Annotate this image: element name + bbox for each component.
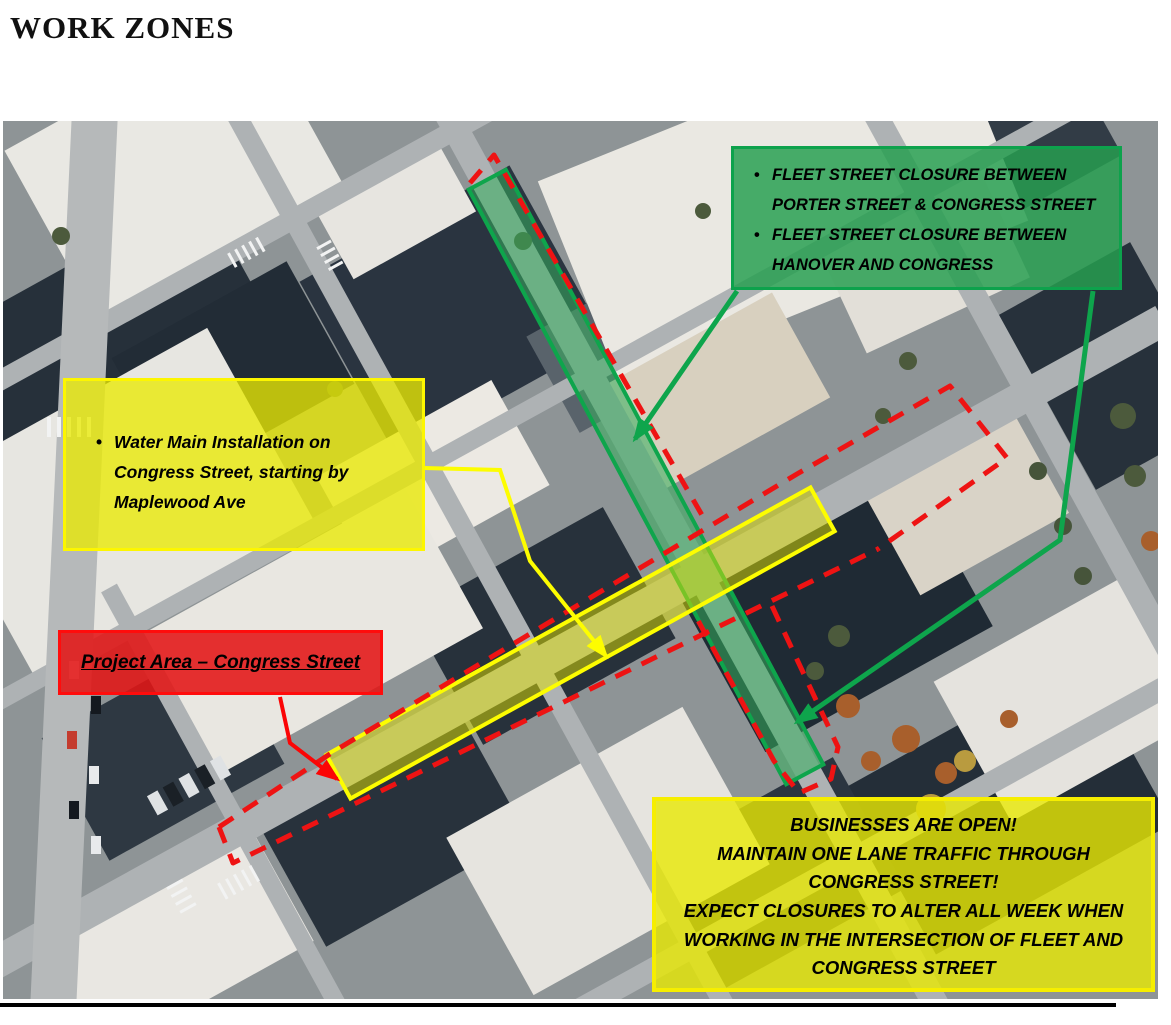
bottom-divider [0,1003,1116,1007]
project-area-leader-arrow [280,697,337,779]
page-title: WORK ZONES [10,10,234,46]
businesses-open-callout: BUSINESSES ARE OPEN! MAINTAIN ONE LANE T… [652,797,1155,992]
fleet-closure-leader-arrow-north [635,291,737,439]
notice-line: BUSINESSES ARE OPEN! [664,811,1143,840]
fleet-closure-item: FLEET STREET CLOSURE BETWEEN HANOVER AND… [772,220,1109,280]
notice-line: MAINTAIN ONE LANE TRAFFIC THROUGH CONGRE… [664,840,1143,897]
aerial-map: FLEET STREET CLOSURE BETWEEN PORTER STRE… [3,121,1158,999]
water-main-item: Water Main Installation on Congress Stre… [114,427,386,517]
project-area-callout: Project Area – Congress Street [58,630,383,695]
water-main-leader-arrow [424,468,606,656]
slide: WORK ZONES [0,0,1171,1025]
fleet-closure-item: FLEET STREET CLOSURE BETWEEN PORTER STRE… [772,160,1109,220]
fleet-closure-callout: FLEET STREET CLOSURE BETWEEN PORTER STRE… [731,146,1122,290]
notice-line: EXPECT CLOSURES TO ALTER ALL WEEK WHEN W… [664,897,1143,983]
project-area-label: Project Area – Congress Street [81,652,360,674]
water-main-callout: Water Main Installation on Congress Stre… [63,378,425,551]
fleet-closure-leader-arrow-south [797,291,1093,722]
